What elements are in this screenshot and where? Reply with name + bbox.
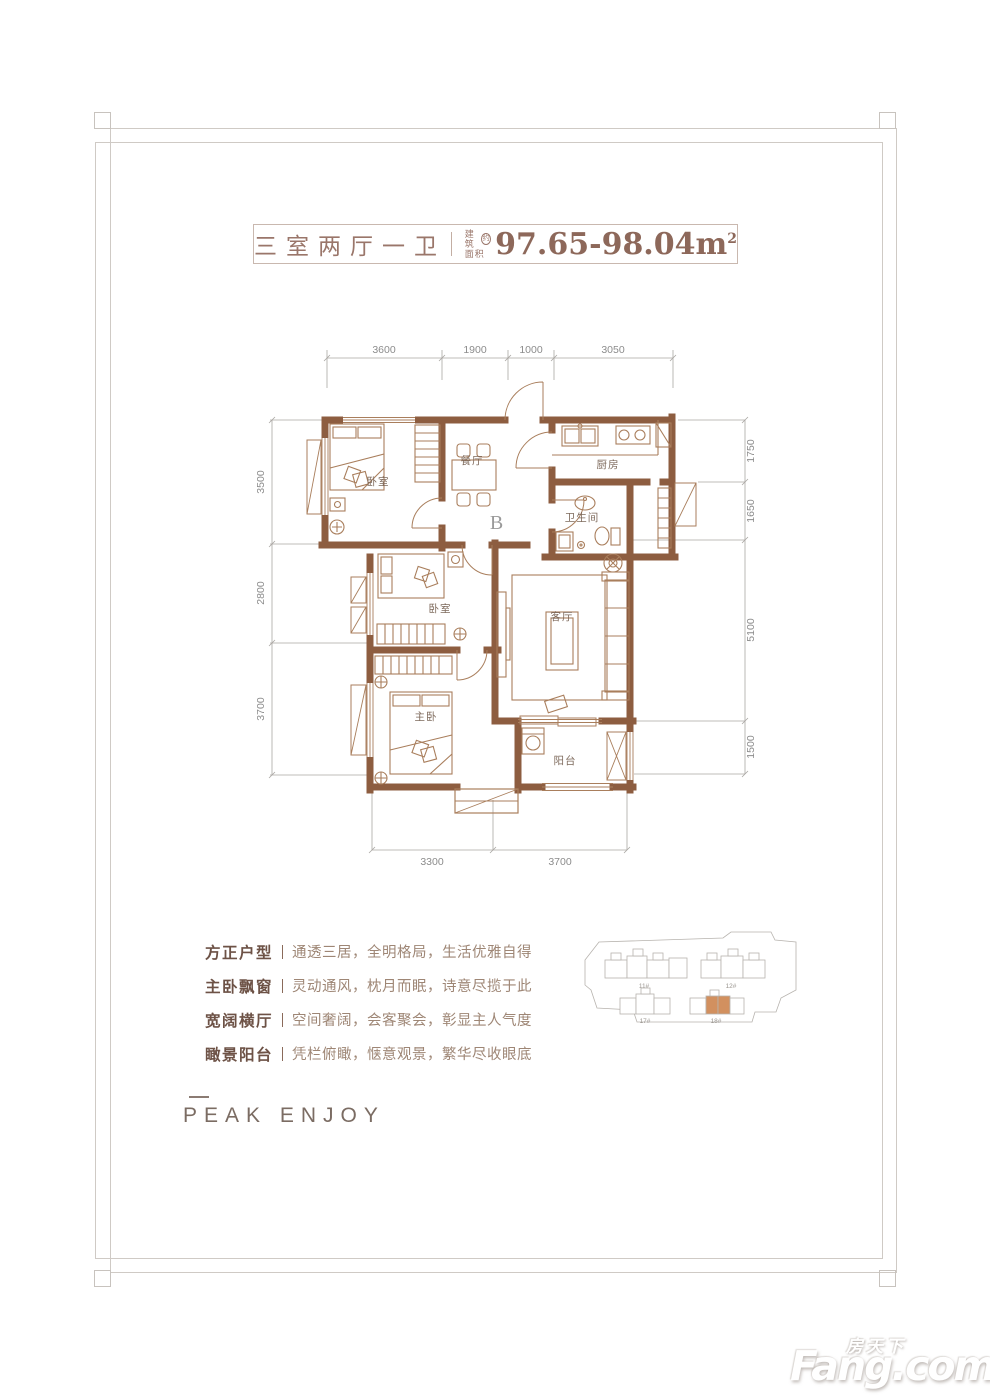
dim-top-2: 1900 [463,344,487,356]
feature-row: 方正户型 通透三居，全明格局，生活优雅自得 [205,941,532,962]
feature-desc: 空间奢阔，会客聚会，彰显主人气度 [292,1009,532,1030]
building-label-17: 17# [640,1018,651,1025]
room-label-dining: 餐厅 [461,454,484,467]
dim-bottom-1: 3300 [420,856,444,868]
dim-bottom-2: 3700 [548,856,572,868]
title-banner: 三室两厅一卫 建筑约 面积 97.65-98.04m2 [253,224,738,264]
area-value: 97.65-98.04m2 [495,227,737,262]
banner-divider [451,232,452,256]
siteplan-buildings [605,949,765,1014]
feature-divider [282,945,283,959]
building-label-12: 12# [726,983,737,990]
walls [322,417,675,790]
dim-right-4: 1500 [745,735,757,759]
dim-left-2: 2800 [255,581,267,605]
unit-label: B [490,512,504,534]
feature-divider [282,1013,283,1027]
area-label-line1: 建筑 [465,229,481,249]
room-label-living: 客厅 [551,610,574,623]
approx-circle-icon: 约 [481,233,491,245]
feature-title: 方正户型 [205,941,273,963]
room-label-master: 主卧 [415,710,438,723]
frame-corner-tl [94,112,111,129]
feature-row: 宽阔横厅 空间奢阔，会客聚会，彰显主人气度 [205,1009,532,1030]
brand-slogan: PEAK ENJOY [183,1104,385,1128]
dim-left-3: 3700 [255,697,267,721]
feature-desc: 灵动通风，枕月而眠，诗意尽揽于此 [292,975,532,996]
dim-right-1: 1750 [745,439,757,463]
watermark-en: Fang.com [790,1342,990,1390]
feature-title: 瞰景阳台 [205,1043,273,1065]
dim-right-3: 5100 [745,618,757,642]
frame-corner-tr [879,112,896,129]
frame-corner-bl [94,1270,111,1287]
feature-title: 主卧飘窗 [205,975,273,997]
floorplan-drawing: 3600 1900 1000 3050 3500 2800 3700 1750 … [250,330,770,885]
feature-row: 主卧飘窗 灵动通风，枕月而眠，诗意尽揽于此 [205,975,532,996]
room-label-bathroom: 卫生间 [565,511,600,524]
room-label-bedroom1: 卧室 [367,475,390,488]
feature-row: 瞰景阳台 凭栏俯瞰，惬意观景，繁华尽收眼底 [205,1043,532,1064]
windows [307,416,696,813]
dim-top-3: 1000 [519,344,543,356]
feature-desc: 凭栏俯瞰，惬意观景，繁华尽收眼底 [292,1043,532,1064]
feature-title: 宽阔横厅 [205,1009,273,1031]
building-label-18: 18# [711,1018,722,1025]
dim-top-1: 3600 [372,344,396,356]
feature-divider [282,979,283,993]
area-label-line2: 面积 [465,249,491,259]
siteplan-map: 11# 12# 17# 18# [575,928,805,1036]
furniture [330,420,671,784]
dim-top-4: 3050 [601,344,625,356]
frame-corner-br [879,1270,896,1287]
feature-divider [282,1047,283,1061]
feature-desc: 通透三居，全明格局，生活优雅自得 [292,941,532,962]
fang-watermark: 房天下 Fang.com [788,1330,988,1396]
area-sup: 2 [727,231,737,247]
dim-left-1: 3500 [255,470,267,494]
room-label-balcony: 阳台 [554,754,577,767]
dimension-lines [269,350,748,853]
brochure-page: 三室两厅一卫 建筑约 面积 97.65-98.04m2 3600 1900 [0,0,990,1400]
layout-title: 三室两厅一卫 [254,227,446,261]
building-label-11: 11# [639,983,650,990]
dim-right-2: 1650 [745,499,757,523]
area-label: 建筑约 面积 [465,229,491,259]
features-list: 方正户型 通透三居，全明格局，生活优雅自得 主卧飘窗 灵动通风，枕月而眠，诗意尽… [205,941,532,1077]
brand-dash [189,1096,209,1098]
room-label-bedroom2: 卧室 [429,602,452,615]
room-label-kitchen: 厨房 [597,458,620,471]
